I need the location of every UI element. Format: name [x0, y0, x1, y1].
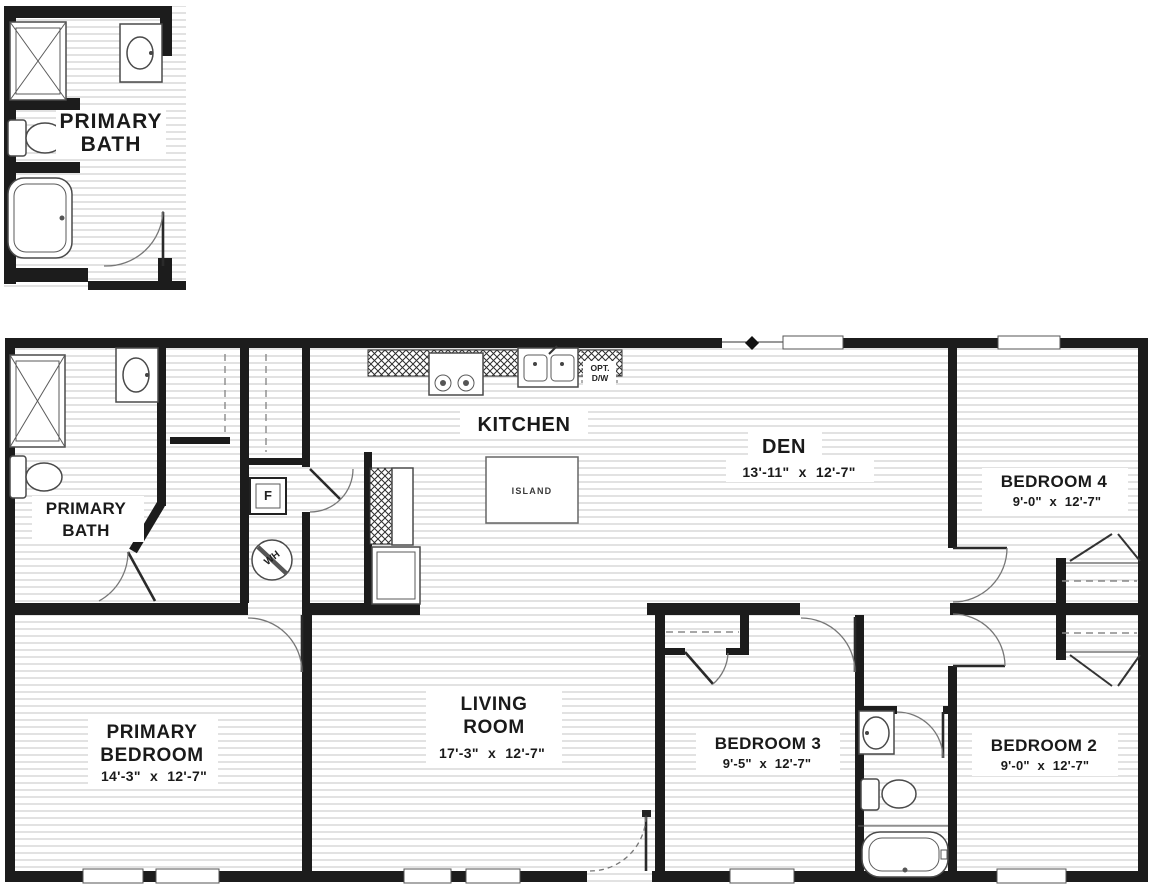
refrigerator-icon [372, 547, 420, 604]
stove-icon [429, 353, 483, 395]
svg-text:ROOM: ROOM [463, 717, 525, 738]
bedroom3-dims: 9'-5" x 12'-7" [723, 756, 812, 771]
tall-cabinet [392, 468, 413, 545]
main-floor-plan: F WH [5, 336, 1148, 883]
floor-plan-drawing: PRIMARY BATH [0, 0, 1153, 887]
kitchen-sink-icon [518, 346, 578, 387]
bedroom4-dims: 9'-0" x 12'-7" [1013, 494, 1102, 509]
living-room-dims: 17'-3" x 12'-7" [439, 745, 545, 761]
bathtub-icon [8, 178, 72, 258]
sink-icon [859, 711, 894, 754]
window-den [783, 336, 843, 349]
svg-text:PRIMARY: PRIMARY [106, 722, 197, 743]
furnace-box: F [250, 478, 286, 514]
room-label-bedroom4: BEDROOM 4 9'-0" x 12'-7" [982, 468, 1128, 512]
inset-title-line2: BATH [81, 133, 142, 156]
pantry-cabinet [370, 468, 392, 544]
kitchen-island: ISLAND [486, 457, 578, 523]
furnace-label: F [264, 488, 272, 503]
room-label-kitchen: KITCHEN [460, 410, 588, 438]
room-label-living-room: LIVING ROOM 17'-3" x 12'-7" [426, 688, 562, 764]
island-label: ISLAND [512, 486, 553, 496]
room-label-bedroom3: BEDROOM 3 9'-5" x 12'-7" [696, 730, 840, 774]
svg-text:BEDROOM 4: BEDROOM 4 [1001, 472, 1108, 491]
sink-icon [120, 24, 162, 82]
bathtub-icon [862, 832, 948, 877]
water-heater: WH [252, 540, 292, 580]
window-bedroom3 [730, 869, 794, 883]
bedroom2-dims: 9'-0" x 12'-7" [1001, 758, 1090, 773]
den-dims: 13'-11" x 12'-7" [742, 464, 855, 480]
svg-text:LIVING: LIVING [461, 694, 528, 715]
svg-text:BEDROOM 2: BEDROOM 2 [991, 736, 1098, 755]
toilet-icon [8, 120, 64, 156]
primary-bath-inset: PRIMARY BATH [4, 6, 186, 292]
sink-icon [116, 348, 158, 402]
svg-text:BATH: BATH [62, 521, 110, 540]
window-primary-bedroom-2 [156, 869, 219, 883]
floor-plan-page: PRIMARY BATH [0, 0, 1153, 887]
room-label-primary-bath: PRIMARY BATH [32, 496, 144, 542]
room-label-bedroom2: BEDROOM 2 9'-0" x 12'-7" [972, 732, 1118, 776]
window-primary-bedroom-1 [83, 869, 143, 883]
opt-dw-line2: D/W [592, 373, 610, 383]
window-living-room-1 [404, 869, 451, 883]
room-label-primary-bedroom: PRIMARY BEDROOM 14'-3" x 12'-7" [88, 716, 218, 786]
svg-text:KITCHEN: KITCHEN [477, 414, 570, 436]
inset-title-line1: PRIMARY [59, 110, 162, 133]
window-bedroom4 [998, 336, 1060, 349]
svg-text:BEDROOM 3: BEDROOM 3 [715, 734, 822, 753]
svg-text:PRIMARY: PRIMARY [46, 499, 127, 518]
shower-icon [10, 355, 65, 447]
primary-bedroom-dims: 14'-3" x 12'-7" [101, 768, 207, 784]
window-bedroom2 [997, 869, 1066, 883]
svg-text:DEN: DEN [762, 436, 806, 458]
opt-dw-line1: OPT. [591, 363, 610, 373]
svg-text:BEDROOM: BEDROOM [100, 745, 203, 766]
toilet-icon [861, 779, 916, 810]
window-living-room-2 [466, 869, 520, 883]
shower-icon [10, 22, 66, 100]
